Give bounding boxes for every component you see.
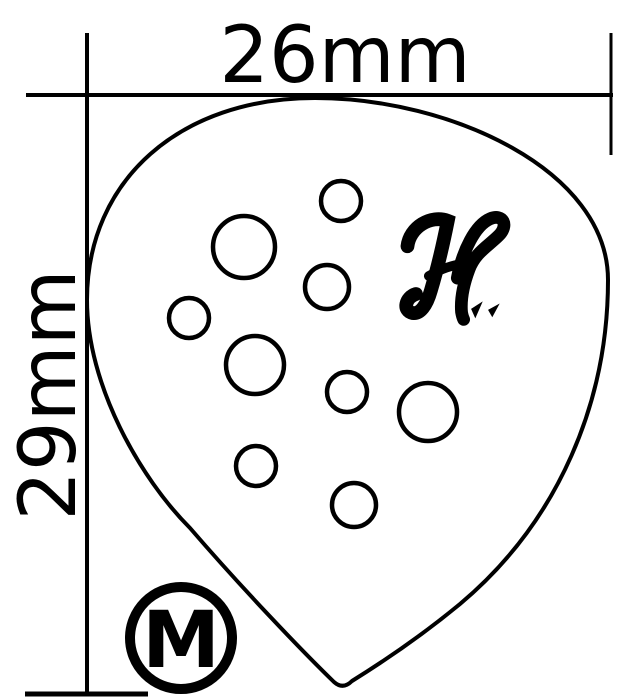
pick-hole [236, 446, 276, 486]
height-dimension-label: 29mm [4, 269, 94, 520]
pick-hole [169, 298, 209, 338]
pick-hole [332, 483, 376, 527]
gauge-badge-letter: M [142, 596, 220, 686]
pick-technical-drawing: 26mm 29mm M [0, 0, 629, 698]
pick-hole [327, 372, 367, 412]
width-dimension-label: 26mm [219, 11, 470, 101]
gauge-badge: M [130, 587, 232, 689]
pick-hole [321, 181, 361, 221]
pick-hole [305, 265, 349, 309]
pick-hole [399, 383, 457, 441]
diagram-canvas: 26mm 29mm M [0, 0, 629, 698]
pick-hole [213, 216, 275, 278]
pick-hole [226, 336, 284, 394]
